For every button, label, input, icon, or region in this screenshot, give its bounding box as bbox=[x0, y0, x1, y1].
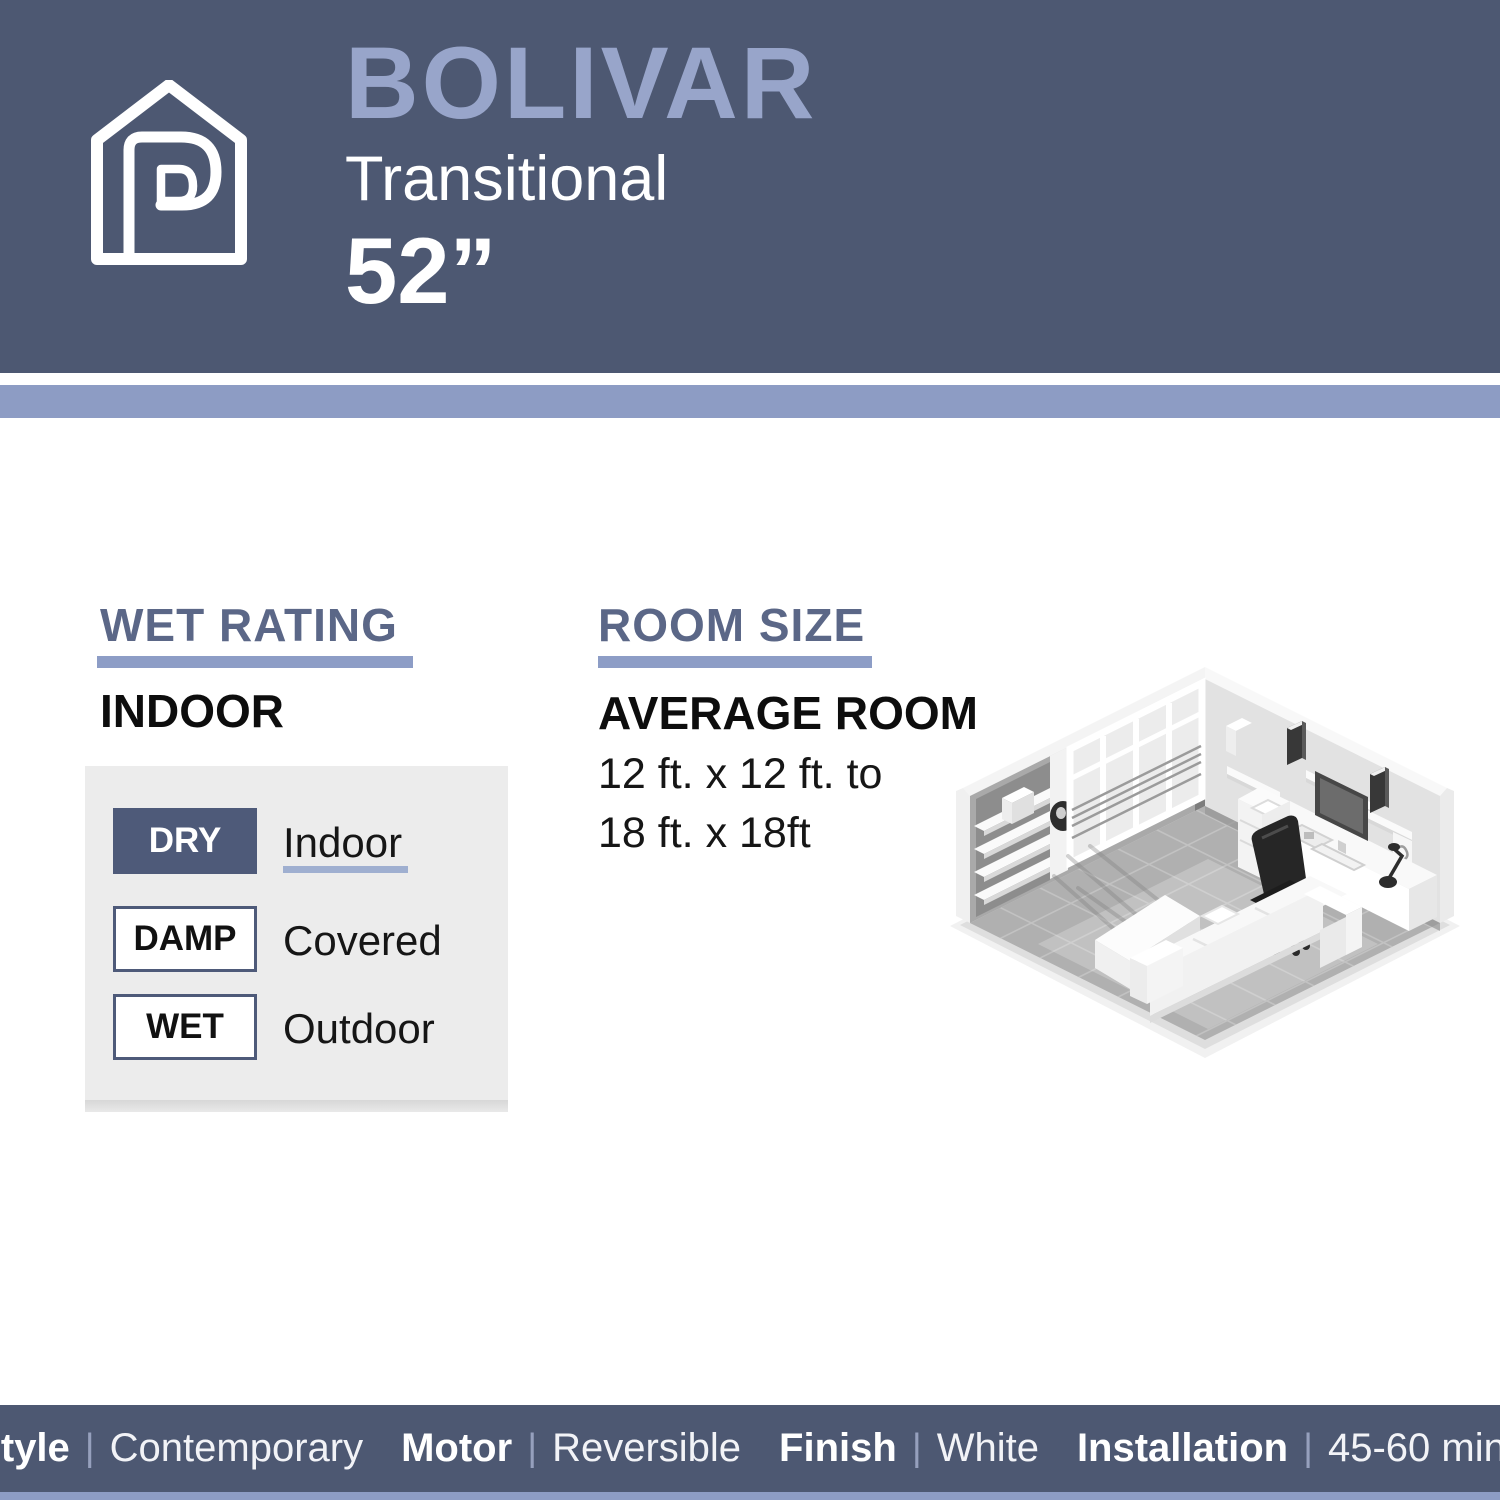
room-illustration bbox=[950, 648, 1460, 1103]
spec-divider: | bbox=[527, 1427, 537, 1470]
spec-style: Style | Contemporary bbox=[0, 1426, 363, 1471]
spec-installation: Installation | 45-60 mins bbox=[1077, 1426, 1500, 1471]
room-dimensions-line2: 18 ft. x 18ft bbox=[598, 804, 882, 863]
product-style-label: Transitional bbox=[345, 148, 668, 211]
spec-label-motor: Motor bbox=[401, 1426, 512, 1471]
accent-stripe bbox=[0, 385, 1500, 418]
spec-label-finish: Finish bbox=[779, 1426, 897, 1471]
spec-finish: Finish | White bbox=[779, 1426, 1039, 1471]
rating-chip-damp: DAMP bbox=[113, 906, 257, 972]
house-p-logo-icon bbox=[88, 80, 250, 266]
bottom-accent-strip bbox=[0, 1492, 1500, 1500]
header-band: BOLIVAR Transitional 52” bbox=[0, 0, 1500, 373]
rating-chip-dry: DRY bbox=[113, 808, 257, 874]
wet-rating-title: WET RATING bbox=[100, 602, 398, 648]
product-infographic: BOLIVAR Transitional 52” WET RATING INDO… bbox=[0, 0, 1500, 1500]
rating-label-covered: Covered bbox=[283, 920, 442, 962]
footer-band: Style | Contemporary Motor | Reversible … bbox=[0, 1405, 1500, 1492]
rating-chip-wet: WET bbox=[113, 994, 257, 1060]
room-size-title: ROOM SIZE bbox=[598, 602, 865, 648]
room-size-heading: AVERAGE ROOM bbox=[598, 690, 978, 736]
spec-divider: | bbox=[912, 1427, 922, 1470]
indoor-underline bbox=[283, 866, 408, 873]
room-dimensions-line1: 12 ft. x 12 ft. to bbox=[598, 745, 882, 804]
room-dimensions: 12 ft. x 12 ft. to 18 ft. x 18ft bbox=[598, 745, 882, 864]
spec-divider: | bbox=[1303, 1427, 1313, 1470]
spec-value-installation: 45-60 mins bbox=[1328, 1426, 1500, 1471]
rating-label-outdoor: Outdoor bbox=[283, 1008, 435, 1050]
room-size-title-underline bbox=[598, 656, 872, 668]
wet-rating-title-underline bbox=[97, 656, 413, 668]
spec-label-installation: Installation bbox=[1077, 1426, 1288, 1471]
wet-rating-panel: DRY Indoor DAMP Covered WET Outdoor bbox=[85, 766, 508, 1100]
spec-divider: | bbox=[85, 1427, 95, 1470]
spec-value-motor: Reversible bbox=[552, 1426, 741, 1471]
product-name: BOLIVAR bbox=[345, 32, 817, 134]
spec-motor: Motor | Reversible bbox=[401, 1426, 741, 1471]
spec-value-finish: White bbox=[937, 1426, 1039, 1471]
product-size-label: 52” bbox=[345, 224, 497, 318]
spec-label-style: Style bbox=[0, 1426, 70, 1471]
rating-label-indoor: Indoor bbox=[283, 822, 402, 864]
wet-rating-value: INDOOR bbox=[100, 688, 284, 734]
spec-value-style: Contemporary bbox=[110, 1426, 363, 1471]
